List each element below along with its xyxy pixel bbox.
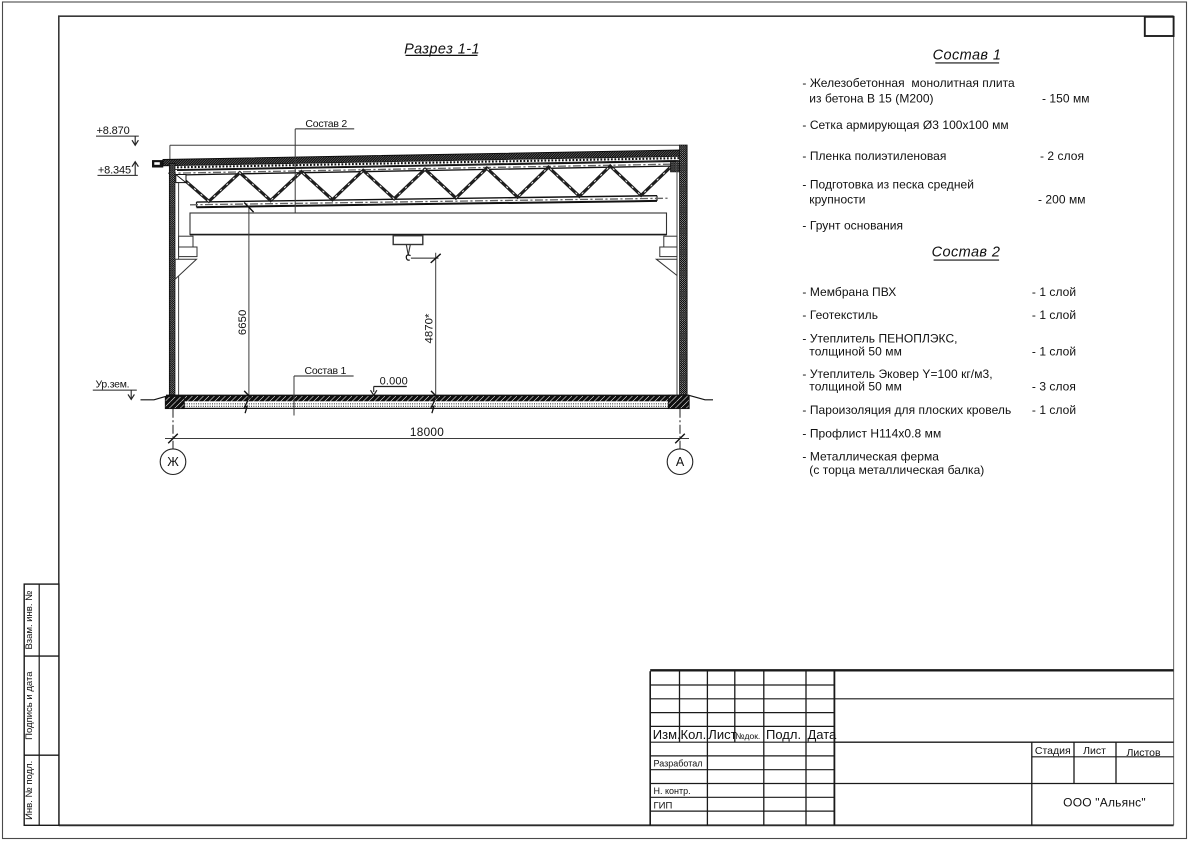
svg-text:№док.: №док.: [735, 731, 760, 741]
svg-text:Инв. № подл.: Инв. № подл.: [24, 761, 35, 820]
svg-text:- Подготовка из песка средней: - Подготовка из песка средней: [802, 178, 974, 192]
svg-text:из бетона В 15 (М200): из бетона В 15 (М200): [809, 91, 933, 105]
svg-text:Ж: Ж: [167, 455, 179, 469]
svg-text:- 2 слоя: - 2 слоя: [1040, 149, 1084, 163]
svg-text:Лист: Лист: [1083, 745, 1106, 757]
svg-text:Кол.: Кол.: [681, 727, 707, 742]
svg-text:Стадия: Стадия: [1035, 745, 1071, 757]
svg-text:Состав 2: Состав 2: [932, 245, 1001, 261]
svg-text:- Пароизоляция для плоских кро: - Пароизоляция для плоских кровель: [802, 403, 1011, 417]
svg-text:- 150 мм: - 150 мм: [1042, 91, 1090, 105]
svg-text:6650: 6650: [237, 310, 249, 336]
svg-text:- Сетка армирующая Ø3 100х100: - Сетка армирующая Ø3 100х100 мм: [802, 118, 1008, 132]
svg-text:- 200 мм: - 200 мм: [1038, 193, 1086, 207]
svg-text:- 3 слоя: - 3 слоя: [1032, 380, 1076, 394]
svg-text:- Профлист Н114х0.8 мм: - Профлист Н114х0.8 мм: [802, 427, 941, 441]
svg-text:- 1 слой: - 1 слой: [1032, 345, 1076, 359]
svg-text:4870*: 4870*: [423, 313, 435, 344]
svg-text:толщиной 50 мм: толщиной 50 мм: [809, 380, 902, 394]
svg-text:Дата: Дата: [808, 727, 838, 742]
svg-text:- Пленка полиэтиленовая: - Пленка полиэтиленовая: [802, 149, 946, 163]
svg-text:- Геотекстиль: - Геотекстиль: [802, 308, 878, 322]
svg-text:- 1 слой: - 1 слой: [1032, 285, 1076, 299]
svg-text:- 1 слой: - 1 слой: [1032, 308, 1076, 322]
svg-text:Лист: Лист: [708, 727, 736, 742]
svg-text:Взам. инв. №: Взам. инв. №: [24, 591, 35, 650]
svg-text:Состав 1: Состав 1: [305, 365, 347, 377]
svg-text:ООО "Альянс": ООО "Альянс": [1063, 796, 1146, 810]
svg-text:- Грунт основания: - Грунт основания: [802, 218, 903, 232]
svg-text:- Железобетонная монолитная п: - Железобетонная монолитная плита: [802, 76, 1015, 90]
svg-text:- Мембрана ПВХ: - Мембрана ПВХ: [802, 285, 896, 299]
svg-text:Изм.: Изм.: [653, 727, 681, 742]
svg-text:толщиной 50 мм: толщиной 50 мм: [809, 345, 902, 359]
svg-text:- Утеплитель ПЕНОПЛЭКС,: - Утеплитель ПЕНОПЛЭКС,: [802, 331, 957, 345]
svg-text:Листов: Листов: [1126, 747, 1161, 759]
svg-text:А: А: [676, 455, 685, 469]
svg-text:- Металлическая ферма: - Металлическая ферма: [802, 450, 939, 464]
svg-text:Разработал: Разработал: [654, 758, 703, 768]
svg-text:Состав 2: Состав 2: [305, 118, 347, 130]
svg-text:(с торца металлическая балка): (с торца металлическая балка): [809, 463, 984, 477]
svg-text:ГИП: ГИП: [654, 800, 673, 811]
svg-text:18000: 18000: [410, 425, 444, 439]
svg-text:0.000: 0.000: [380, 375, 408, 387]
svg-text:- 1 слой: - 1 слой: [1032, 403, 1076, 417]
svg-text:крупности: крупности: [809, 193, 865, 207]
svg-text:Состав 1: Состав 1: [933, 48, 1002, 64]
svg-text:+8.870: +8.870: [97, 125, 130, 137]
svg-text:Ур.зем.: Ур.зем.: [96, 379, 130, 390]
svg-text:Подл.: Подл.: [766, 727, 801, 742]
svg-text:Н. контр.: Н. контр.: [654, 786, 691, 796]
svg-text:Подпись и дата: Подпись и дата: [24, 671, 35, 740]
